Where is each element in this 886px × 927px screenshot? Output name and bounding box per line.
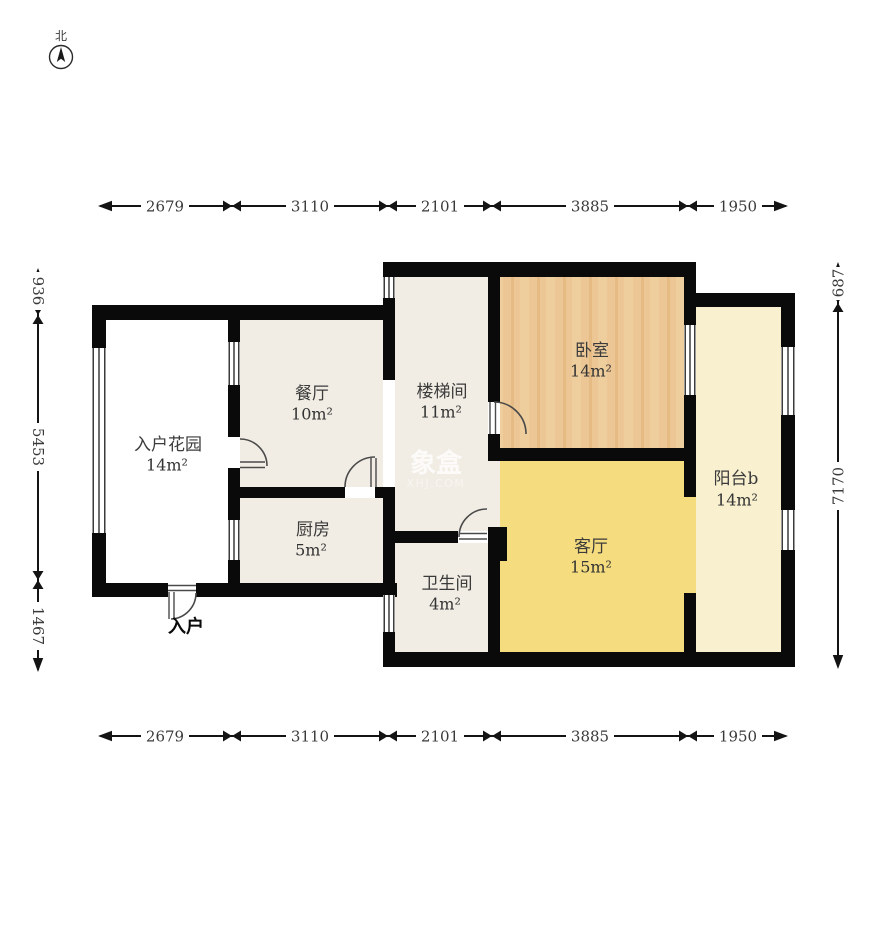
dim-label: 1950: [719, 197, 757, 215]
dim-tick-icon: [483, 201, 501, 212]
wall-segment: [684, 395, 696, 497]
dim-label: 936: [29, 277, 47, 306]
floor-plan-canvas: 入户花园 14m² 餐厅 10m² 厨房 5m² 楼梯间 11m² 卧室 14m…: [0, 0, 886, 927]
wall-segment: [228, 385, 240, 437]
dimension-right: 687 7170: [829, 262, 847, 669]
arrow-left-icon: [98, 201, 112, 211]
door-swing-entry: [168, 586, 196, 620]
room-label-dining: 餐厅: [295, 384, 329, 404]
window-symbol: [228, 520, 240, 560]
room-label-living: 客厅: [574, 537, 608, 557]
wall-segment: [488, 277, 500, 402]
entry-label: 入户: [168, 615, 204, 637]
room-area-kitchen: 5m²: [295, 541, 327, 560]
dim-tick-icon: [483, 731, 501, 742]
wall-segment: [488, 448, 696, 461]
room-area-bedroom: 14m²: [570, 362, 612, 381]
wall-segment: [92, 305, 395, 320]
passage-floor: [488, 461, 500, 527]
room-label-entry-garden: 入户花园: [134, 435, 202, 455]
room-label-bathroom: 卫生间: [422, 574, 473, 594]
wall-segment: [196, 583, 397, 597]
wall-segment: [684, 293, 795, 307]
room-label-bedroom: 卧室: [575, 341, 609, 361]
arrow-down-icon: [833, 655, 843, 669]
north-compass: 北: [50, 29, 73, 69]
wall-segment: [228, 320, 240, 342]
dim-label: 5453: [29, 428, 47, 466]
room-area-bathroom: 4m²: [429, 595, 461, 614]
dim-label: 3110: [291, 197, 329, 215]
dim-tick-icon: [379, 201, 397, 212]
dim-tick-icon: [223, 201, 241, 212]
room-area-living: 15m²: [570, 558, 612, 577]
room-label-kitchen: 厨房: [296, 520, 330, 540]
compass-needle-icon: [57, 47, 65, 62]
wall-segment: [383, 632, 395, 667]
living-balcony-opening-floor: [684, 497, 696, 593]
dim-label: 3110: [291, 727, 329, 745]
wall-segment: [240, 487, 345, 498]
room-area-stairwell: 11m²: [420, 403, 462, 422]
wall-segment: [488, 527, 507, 561]
wall-segment: [228, 560, 240, 583]
window-symbol: [684, 325, 696, 395]
arrow-right-icon: [774, 731, 788, 741]
dim-label: 2679: [146, 197, 184, 215]
wall-segment: [383, 262, 696, 277]
wall-segment: [92, 533, 106, 597]
dim-label: 687: [829, 269, 847, 298]
dim-label: 1467: [29, 607, 47, 645]
dim-tick-icon: [379, 731, 397, 742]
dimension-top: 2679 3110 2101 3885 1950: [98, 197, 788, 215]
watermark: 象盒 XHJ.COM: [407, 448, 466, 490]
wall-segment: [228, 468, 240, 520]
room-label-balcony: 阳台b: [714, 469, 759, 489]
dim-tick-icon: [679, 731, 697, 742]
wall-segment: [781, 550, 795, 667]
arrow-left-icon: [98, 731, 112, 741]
window-symbol: [228, 342, 240, 385]
window-symbol: [92, 348, 106, 533]
wall-segment: [781, 415, 795, 510]
dimension-left: 936 5453 1467: [29, 268, 47, 672]
watermark-site: XHJ.COM: [407, 477, 466, 490]
wall-segment: [488, 434, 500, 461]
room-label-stairwell: 楼梯间: [417, 382, 468, 402]
dimension-bottom: 2679 3110 2101 3885 1950: [98, 727, 788, 745]
dim-label: 2101: [421, 197, 459, 215]
window-symbol: [781, 510, 795, 550]
dim-label: 3885: [571, 727, 609, 745]
room-area-balcony: 14m²: [716, 491, 758, 510]
wall-segment: [395, 531, 458, 543]
window-symbol: [383, 595, 395, 632]
wall-segment: [383, 298, 395, 380]
dim-label: 3885: [571, 197, 609, 215]
dim-tick-icon: [33, 571, 44, 589]
wall-segment: [92, 305, 106, 348]
watermark-brand: 象盒: [410, 448, 463, 479]
wall-segment: [684, 593, 696, 667]
arrow-down-icon: [33, 658, 43, 672]
dim-tick-icon: [223, 731, 241, 742]
wall-segment: [383, 652, 795, 667]
room-area-entry-garden: 14m²: [146, 456, 188, 475]
dim-tick-icon: [679, 201, 697, 212]
dim-label: 7170: [829, 467, 847, 505]
wall-segment: [383, 487, 395, 595]
wall-segment: [684, 262, 696, 325]
window-symbol: [383, 277, 395, 298]
dim-label: 2679: [146, 727, 184, 745]
arrow-right-icon: [774, 201, 788, 211]
floor-plan: 入户花园 14m² 餐厅 10m² 厨房 5m² 楼梯间 11m² 卧室 14m…: [0, 0, 886, 927]
wall-segment: [781, 293, 795, 347]
dim-label: 2101: [421, 727, 459, 745]
room-area-dining: 10m²: [291, 405, 333, 424]
north-label: 北: [55, 29, 67, 43]
dim-label: 1950: [719, 727, 757, 745]
window-symbol: [781, 347, 795, 415]
